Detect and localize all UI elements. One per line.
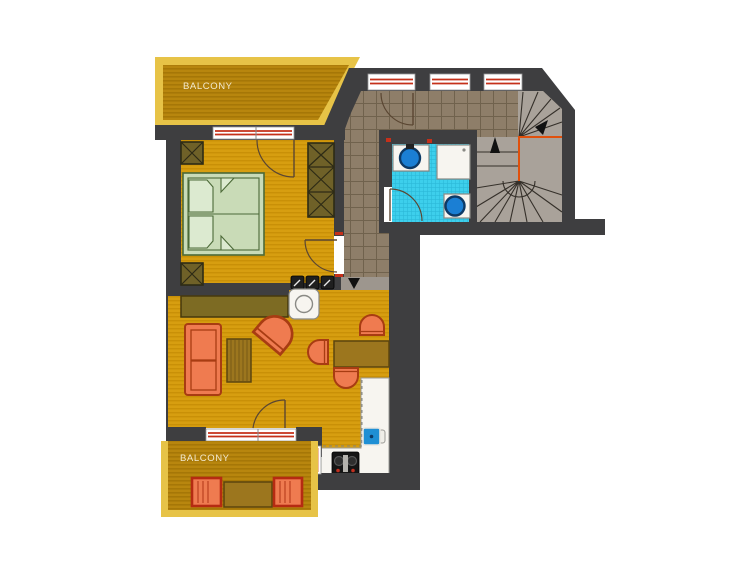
coffee-table xyxy=(227,339,251,382)
dining-chair-left xyxy=(308,340,328,364)
floor-plan: BALCONY xyxy=(0,0,755,566)
wardrobe-bottom-left xyxy=(181,263,203,285)
bedroom-door-mark-bottom xyxy=(335,274,343,277)
dining-chair-top xyxy=(360,315,384,335)
floor-plan-page: BALCONY xyxy=(0,0,755,566)
wardrobe-top-left xyxy=(181,142,203,164)
bed-pillow-top xyxy=(189,180,213,212)
wardrobe-right xyxy=(308,143,334,217)
bathroom-door-opening xyxy=(384,187,392,222)
hall-window-2 xyxy=(430,74,470,90)
hall-window-1 xyxy=(368,74,415,90)
double-bed xyxy=(183,173,264,255)
bathroom xyxy=(379,130,477,233)
kitchen-sink xyxy=(363,428,385,445)
sideboard xyxy=(181,296,288,317)
washing-machine xyxy=(289,289,319,319)
living-bottom-wall-right xyxy=(310,473,420,490)
bedroom-door-opening xyxy=(334,236,344,274)
hall-window-3 xyxy=(484,74,522,90)
hallway-windows xyxy=(368,74,522,90)
stove xyxy=(332,452,359,475)
sofa xyxy=(185,324,221,395)
balcony-bottom: BALCONY xyxy=(161,441,318,517)
bedroom-balcony-door-glass xyxy=(256,127,294,139)
bathroom-frame-mark-1 xyxy=(386,138,391,142)
kitchen-wall-units xyxy=(291,276,334,289)
toilet-bowl xyxy=(446,197,465,216)
balcony-chair-left xyxy=(192,478,221,506)
bathroom-sink-tap xyxy=(406,144,414,149)
living-bottom-wall-left xyxy=(166,427,206,443)
bathroom-frame-mark-2 xyxy=(427,139,432,143)
balcony-bottom-label: BALCONY xyxy=(180,453,230,464)
bathroom-sink-basin xyxy=(400,148,420,168)
bed-pillow-bottom xyxy=(189,216,213,248)
balcony-top-label: BALCONY xyxy=(183,81,233,92)
dining-table xyxy=(334,341,389,367)
shower-drain xyxy=(462,148,465,151)
entry-step xyxy=(341,277,389,290)
balcony-top-floor xyxy=(163,65,349,120)
balcony-table xyxy=(224,482,272,507)
living-right-wall xyxy=(389,234,420,490)
bedroom-window xyxy=(213,127,256,139)
living-window xyxy=(206,429,296,441)
bedroom-door-mark-top xyxy=(335,232,343,235)
dining-chair-bottom xyxy=(334,368,358,388)
balcony-chair-right xyxy=(274,478,302,506)
